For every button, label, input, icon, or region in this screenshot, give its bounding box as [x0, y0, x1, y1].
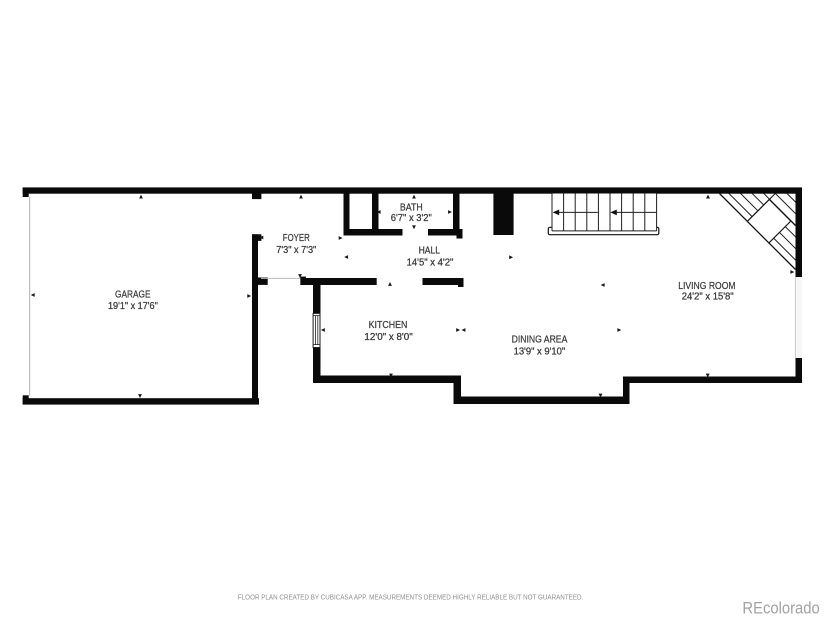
svg-text:LIVING ROOM: LIVING ROOM	[678, 281, 735, 292]
svg-text:14'5" x 4'2": 14'5" x 4'2"	[407, 258, 454, 269]
svg-text:6'7" x 3'2": 6'7" x 3'2"	[391, 213, 433, 224]
svg-text:HALL: HALL	[419, 245, 441, 256]
svg-text:BATH: BATH	[400, 202, 423, 213]
svg-text:DINING AREA: DINING AREA	[512, 334, 568, 345]
svg-text:REcolorado: REcolorado	[742, 600, 819, 618]
svg-text:FLOOR PLAN CREATED BY CUBICASA: FLOOR PLAN CREATED BY CUBICASA APP. MEAS…	[238, 593, 584, 602]
svg-text:19'1" x 17'6": 19'1" x 17'6"	[108, 301, 158, 312]
svg-text:24'2" x 15'8": 24'2" x 15'8"	[682, 291, 734, 302]
svg-text:13'9" x 9'10": 13'9" x 9'10"	[514, 347, 566, 358]
svg-text:7'3" x 7'3": 7'3" x 7'3"	[276, 245, 317, 256]
svg-text:GARAGE: GARAGE	[115, 289, 151, 300]
svg-text:FOYER: FOYER	[283, 233, 310, 244]
svg-text:12'0" x 8'0": 12'0" x 8'0"	[364, 332, 413, 343]
svg-text:KITCHEN: KITCHEN	[369, 320, 408, 331]
